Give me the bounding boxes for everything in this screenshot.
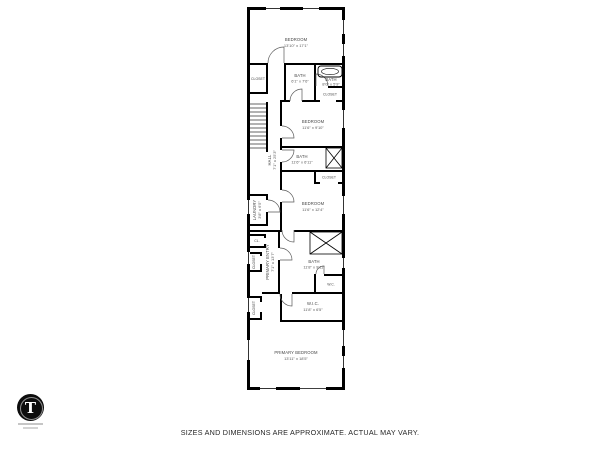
door-arc xyxy=(282,230,294,242)
door-arc xyxy=(268,47,284,63)
room-dims-laundry: 3'8" x 6'5" xyxy=(257,201,262,219)
logo-disc: T xyxy=(17,394,44,421)
door-arc xyxy=(282,126,294,138)
room-labels: BEDROOM 13'10" x 17'1" CLOSET BATH 6'1" … xyxy=(251,37,340,361)
floor-plan: BEDROOM 13'10" x 17'1" CLOSET BATH 6'1" … xyxy=(0,0,600,450)
room-label-closet-left: CLOSET xyxy=(252,254,256,269)
room-label-closet-top-left: CLOSET xyxy=(251,77,266,81)
room-dims-bath-primary: 11'8" x 9'11" xyxy=(303,265,325,270)
room-label-bedroom-3: BEDROOM xyxy=(302,201,325,206)
room-dims-bedroom-2: 11'6" x 9'10" xyxy=(302,125,324,130)
room-dims-primary-bedroom: 13'11" x 18'5" xyxy=(284,356,308,361)
room-label-closet-top-right: CLOSET xyxy=(323,93,338,97)
room-dims-primary-entry: 7'1" x 13'7" xyxy=(270,252,275,272)
window-sill-lines xyxy=(249,9,344,389)
page-canvas: BEDROOM 13'10" x 17'1" CLOSET BATH 6'1" … xyxy=(0,0,600,450)
door-arc xyxy=(280,248,292,260)
disclaimer-text: SIZES AND DIMENSIONS ARE APPROXIMATE. AC… xyxy=(0,428,600,437)
room-label-closet-cl: CL. xyxy=(254,239,259,243)
room-dims-hall: 7'1" x 25'3" xyxy=(272,150,277,170)
door-arc xyxy=(290,89,302,101)
room-label-primary-bedroom: PRIMARY BEDROOM xyxy=(274,350,318,355)
room-dims-bedroom-top: 13'10" x 17'1" xyxy=(284,43,309,48)
room-dims-wic: 11'8" x 6'5" xyxy=(303,307,323,312)
stairs xyxy=(250,104,266,148)
wall-left xyxy=(247,7,250,390)
room-label-wic: W.I.C. xyxy=(307,301,319,306)
room-dims-bath-top-middle: 6'1" x 7'6" xyxy=(291,79,309,84)
shower-xbox-icon xyxy=(326,148,342,168)
logo-caption xyxy=(18,423,43,425)
wall-top xyxy=(247,7,345,10)
room-dims-bath-top-right: 8'0" x 5'9" xyxy=(322,82,340,87)
door-arc xyxy=(268,200,280,212)
room-label-wc: W.C. xyxy=(327,283,335,287)
room-label-bath-top-middle: BATH xyxy=(294,73,305,78)
door-arc xyxy=(282,190,294,202)
room-label-closet-bottom-left: CLOSET xyxy=(252,300,256,315)
room-label-bath-primary: BATH xyxy=(308,259,319,264)
room-label-bath-middle: BATH xyxy=(296,154,307,159)
room-label-closet-mid-right: CLOSET xyxy=(322,176,337,180)
room-dims-bath-middle: 11'6" x 6'11" xyxy=(291,160,313,165)
room-dims-bedroom-3: 11'6" x 12'4" xyxy=(302,207,324,212)
room-label-bedroom-2: BEDROOM xyxy=(302,119,325,124)
shower-xbox-icon xyxy=(310,232,342,254)
room-label-bedroom-top: BEDROOM xyxy=(285,37,308,42)
logo-monogram: T xyxy=(25,401,36,416)
